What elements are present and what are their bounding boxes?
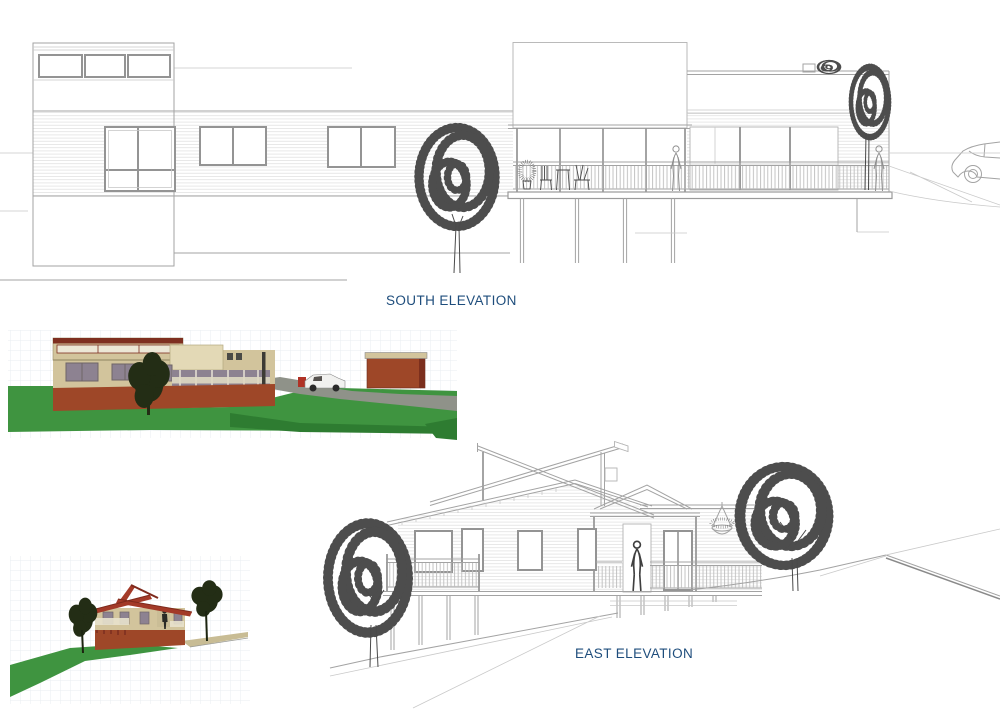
window-pair-1 [200, 127, 266, 165]
porch-doorway [623, 524, 651, 592]
drawing-sheet: SOUTH ELEVATION EAST ELEVATION [0, 0, 1000, 710]
shed [365, 353, 427, 389]
deck-fascia [508, 192, 892, 199]
window-pair-2 [328, 127, 395, 167]
east-colour-render [10, 556, 250, 704]
east-elevation-label: EAST ELEVATION [575, 646, 693, 661]
roof-plant-sketch [818, 61, 840, 74]
south-elevation-label: SOUTH ELEVATION [386, 293, 517, 308]
chimney-box [605, 468, 617, 481]
east-elevation-drawing [328, 442, 1000, 709]
east-tree-left [328, 523, 408, 667]
south-colour-render [8, 330, 457, 440]
floor-line [383, 592, 762, 596]
clerestory-windows [39, 55, 170, 77]
car-sketch [952, 142, 1000, 183]
deck-piers [520, 199, 889, 264]
window-four-pane [105, 127, 175, 191]
elevation-drawings-canvas [0, 0, 1000, 710]
gable-block [513, 43, 687, 129]
south-elevation-drawing [0, 43, 1000, 281]
